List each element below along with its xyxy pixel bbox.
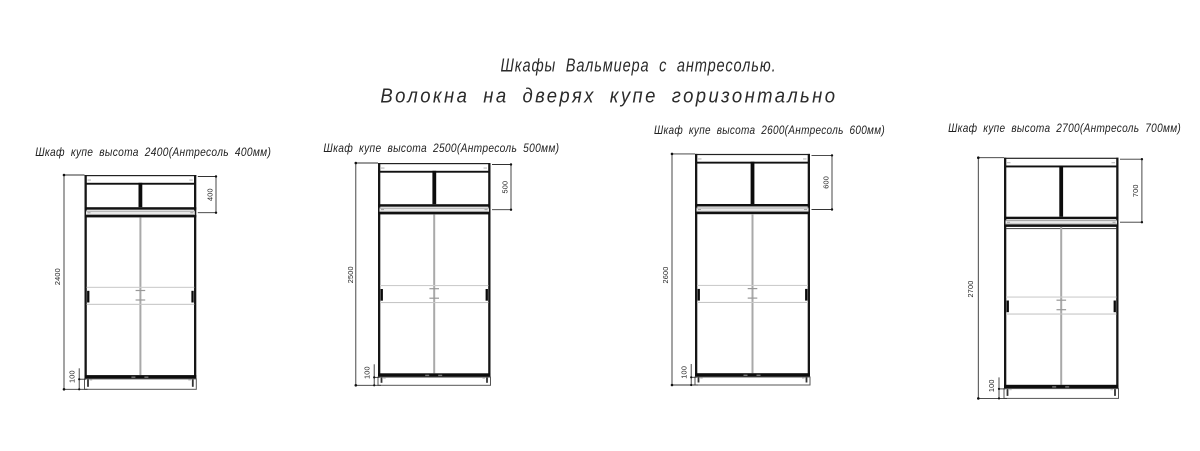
svg-text:Шкаф купе высота 2700(Антресол: Шкаф купе высота 2700(Антресоль 700мм) [948,122,1181,135]
svg-text:2400: 2400 [53,268,62,285]
svg-text:Шкаф купе высота 2500(Антресол: Шкаф купе высота 2500(Антресоль 500мм) [323,142,559,155]
svg-text:100: 100 [679,366,688,379]
svg-text:Шкаф купе высота 2400(Антресол: Шкаф купе высота 2400(Антресоль 400мм) [35,146,271,159]
svg-text:Шкафы Вальмиера с антресолью.: Шкафы Вальмиера с антресолью. [501,55,777,76]
svg-text:700: 700 [1131,184,1140,197]
svg-text:400: 400 [205,188,214,201]
svg-text:Шкаф купе высота 2600(Антресол: Шкаф купе высота 2600(Антресоль 600мм) [654,124,885,137]
svg-text:600: 600 [821,176,830,189]
svg-text:2500: 2500 [346,266,355,283]
svg-text:2700: 2700 [966,280,975,297]
svg-text:100: 100 [987,379,996,392]
svg-text:100: 100 [362,366,371,379]
svg-text:100: 100 [67,370,76,383]
svg-text:2600: 2600 [661,266,670,283]
svg-text:Волокна на дверях купе горизон: Волокна на дверях купе горизонтально [380,85,837,107]
svg-text:500: 500 [500,181,509,194]
